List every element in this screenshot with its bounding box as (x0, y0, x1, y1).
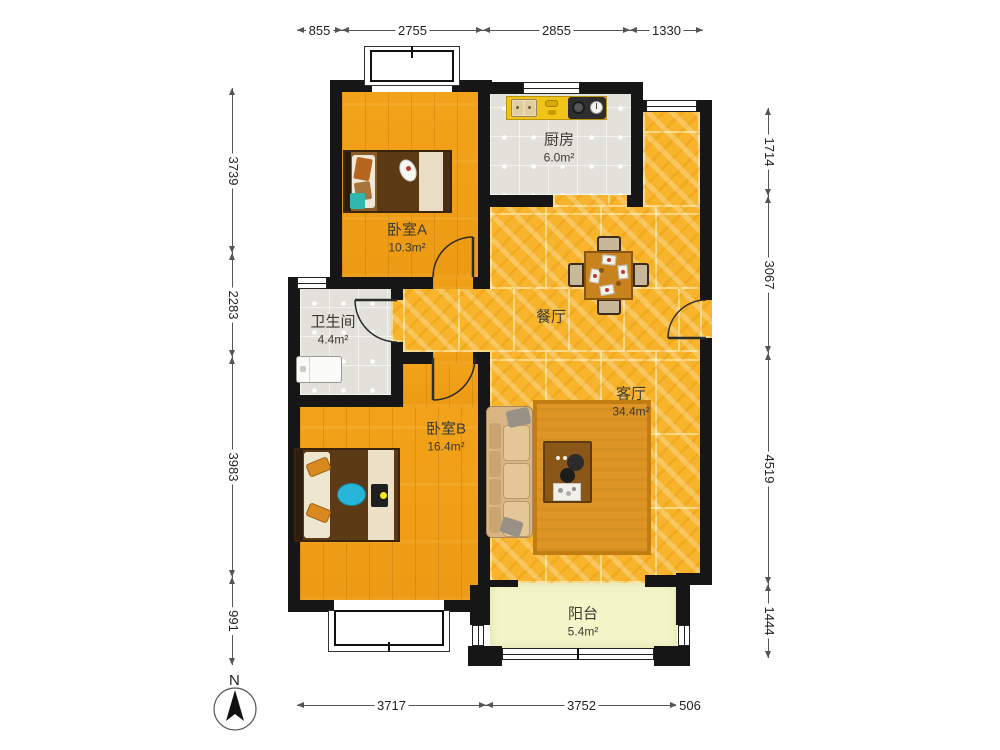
dim-left-1: 3739 (232, 88, 233, 253)
dim-right-2: 3067 (768, 196, 769, 353)
room-label-bedroom-a: 卧室A 10.3m² (387, 221, 427, 254)
dim-right-3: 4519 (768, 353, 769, 584)
dim-value: 3752 (564, 699, 599, 713)
dim-right-4: 1444 (768, 584, 769, 658)
room-area: 5.4m² (568, 624, 599, 638)
dim-value: 2283 (226, 288, 240, 323)
dim-value: 2855 (539, 24, 574, 38)
compass-north-label: N (229, 672, 240, 689)
dim-left-2: 2283 (232, 253, 233, 357)
bedroom-b-door-arc (433, 358, 475, 400)
room-label-bedroom-b: 卧室B 16.4m² (426, 420, 466, 453)
dim-value: 991 (226, 607, 240, 635)
dim-value: 3983 (226, 450, 240, 485)
room-area: 34.4m² (612, 404, 649, 418)
dim-bottom-1: 3717 (297, 705, 486, 706)
dim-value: 1330 (649, 24, 684, 38)
bedroom-a-door-arc (433, 237, 473, 277)
dim-top-1: 855 (297, 30, 342, 31)
dim-top-3: 2855 (483, 30, 630, 31)
dim-left-4: 991 (232, 577, 233, 665)
room-name: 客厅 (612, 385, 649, 404)
dim-bottom-2: 3752 (486, 705, 677, 706)
room-area: 16.4m² (426, 439, 466, 453)
room-name: 厨房 (544, 131, 575, 150)
room-label-balcony: 阳台 5.4m² (568, 605, 599, 638)
dim-top-4: 1330 (630, 30, 703, 31)
room-area: 4.4m² (310, 332, 355, 346)
dim-value: 2755 (395, 24, 430, 38)
dim-bottom-3: 506 (677, 705, 703, 706)
dim-value: 506 (676, 699, 704, 713)
dim-value: 4519 (762, 451, 776, 486)
room-label-kitchen: 厨房 6.0m² (544, 131, 575, 164)
room-name: 卧室A (387, 221, 427, 240)
floorplan-canvas: N 厨房 6.0m² 卧室A 10.3m² 卫生间 4.4m² 餐厅 客厅 34… (0, 0, 1000, 750)
dim-value: 855 (306, 24, 334, 38)
room-name: 卫生间 (310, 313, 355, 332)
room-area: 10.3m² (387, 240, 427, 254)
doors-and-compass-overlay (0, 0, 1000, 750)
room-label-bathroom: 卫生间 4.4m² (310, 313, 355, 346)
dim-value: 1444 (762, 604, 776, 639)
dim-value: 3067 (762, 257, 776, 292)
room-area: 6.0m² (544, 150, 575, 164)
dim-left-3: 3983 (232, 357, 233, 577)
dim-top-2: 2755 (342, 30, 483, 31)
compass-icon (214, 688, 256, 730)
room-label-dining: 餐厅 (536, 309, 566, 328)
dim-value: 3717 (374, 699, 409, 713)
dim-value: 3739 (226, 153, 240, 188)
room-label-living: 客厅 34.4m² (612, 385, 649, 418)
room-name: 阳台 (568, 605, 599, 624)
dim-value: 1714 (762, 135, 776, 170)
entry-door-arc (668, 300, 706, 338)
room-name: 餐厅 (536, 309, 566, 328)
room-name: 卧室B (426, 420, 466, 439)
bathroom-door-arc (355, 300, 397, 342)
dim-right-1: 1714 (768, 108, 769, 196)
